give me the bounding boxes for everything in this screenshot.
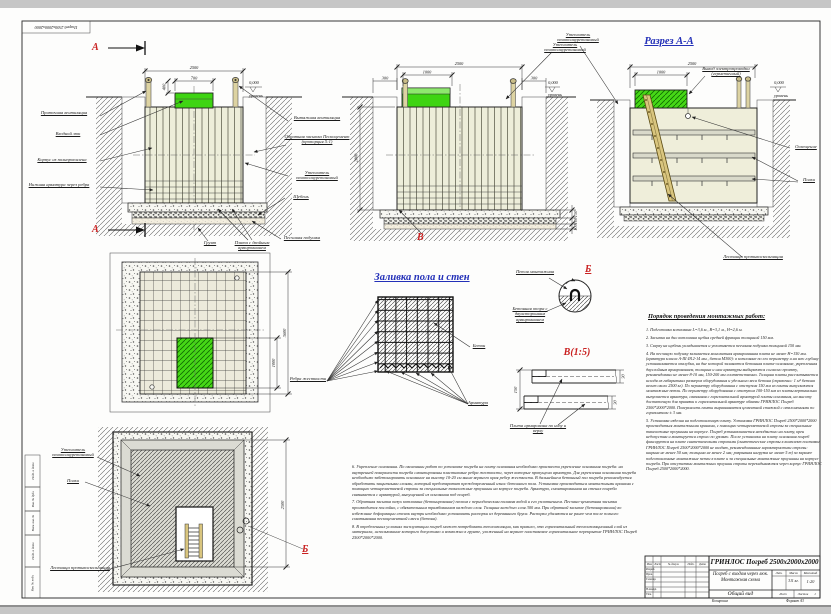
frame-format-label: Формат А3 (775, 599, 815, 603)
svg-text:1000: 1000 (271, 358, 276, 367)
titleblock-scale-value: 1:20 (801, 579, 820, 584)
titleblock-mass-value: 311 кг. (786, 579, 801, 583)
svg-text:уровень: уровень (773, 93, 788, 98)
detail-mark-v: В (417, 232, 424, 243)
svg-text:1000: 1000 (423, 70, 432, 75)
svg-text:2500: 2500 (190, 65, 199, 70)
detail-v-title: В(1:5) (552, 347, 602, 358)
view-side-section: 2500 1000 300 300 2000 150 100 100 0,000… (342, 52, 578, 241)
label-insulation-4: Утеплитель пенополиуретановый (42, 447, 104, 458)
detail-mark-b-plan: Б (302, 544, 308, 555)
titleblock-col-data: Дата (697, 563, 709, 566)
label-insulation-3: Утеплитель пенополиуретановый (552, 32, 604, 43)
titleblock-col-list: Лист (654, 563, 662, 566)
label-supply-vent: Приточная вентиляция (28, 110, 100, 115)
section-mark-a-bottom: А (92, 224, 99, 235)
svg-text:2500: 2500 (688, 61, 697, 66)
label-insulation-1: Утеплитель пенополиуретановый (288, 170, 346, 181)
label-crushed-stone: Щебень (284, 194, 318, 199)
instruction-item: 2. Засыпка на дно котлована щебня средне… (646, 335, 822, 340)
label-rebar: Арматура (460, 400, 496, 405)
titleblock-lit-label: Лит. (772, 571, 786, 575)
label-lighting: Освещение (786, 144, 826, 149)
titleblock-mass-label: Масса (786, 571, 801, 575)
side-stamp-4: Подп. и дата (29, 535, 37, 567)
label-shelves-1: Полки (794, 177, 824, 182)
label-double-rebar-plate: Плита с двойным армированием (224, 240, 280, 251)
label-soil: Грунт (196, 240, 224, 245)
titleblock-row-nkontr: Н.контр. (646, 588, 662, 591)
titleblock-row-razrab: Разраб. (646, 568, 662, 571)
svg-text:30: 30 (621, 374, 626, 379)
svg-text:1000: 1000 (657, 70, 666, 75)
titleblock-col-podp: Подп. (686, 563, 697, 566)
instruction-item: 3. Сверху на щебень укладывается и уплот… (646, 343, 822, 348)
detail-v: 150 30 30 (513, 368, 626, 426)
instructions-list: 1. Подготовка котлована L=3,6 м., В=3,1 … (646, 327, 822, 474)
svg-text:2500: 2500 (455, 61, 464, 66)
label-mounting-loop: Петля монтажная (514, 269, 556, 274)
titleblock-row-tkontr: Т.контр. (646, 578, 662, 581)
svg-text:700: 700 (191, 76, 198, 81)
label-entry-hatch: Входной люк (38, 131, 98, 136)
svg-text:2500: 2500 (280, 500, 285, 509)
label-concrete: Бетон (464, 343, 494, 348)
svg-text:300: 300 (382, 76, 389, 81)
instruction-item: 5. Установка изделия на подготовленную п… (646, 418, 822, 472)
corner-stamp: Погреб 2500x2000x2000 (22, 22, 90, 33)
label-ladder-2: Лестница противоскользящая (48, 565, 112, 570)
titleblock-row-prov: Пров. (646, 573, 662, 576)
side-stamp-5: Инв. № подл. (29, 567, 37, 598)
titleblock-sheets-value: 1 (812, 592, 818, 596)
note-item: 6. Укрепление основания. По окончании ра… (352, 464, 640, 497)
svg-text:150: 150 (573, 210, 578, 217)
note-item: 7. Обратная засыпка пазух котлована (бет… (352, 499, 640, 521)
svg-text:3600: 3600 (282, 328, 287, 337)
view-plan-plate: 3600 1000 (110, 253, 292, 412)
side-stamp-1: Подп. и дата (29, 455, 37, 487)
detail-mark-b: Б (585, 264, 591, 275)
view-plan-interior: 2500 (85, 427, 303, 592)
pour-title: Заливка пола и стен (362, 272, 482, 283)
titleblock-row-utv: Утв. (646, 593, 662, 596)
label-exhaust-vent: Вытяжная вентиляция (288, 115, 346, 120)
section-aa-title: Разрез А-А (634, 36, 704, 47)
label-sand-cushion-1: Песчаная подушка (276, 235, 328, 240)
titleblock-sheet-label: Лист (772, 592, 794, 596)
label-concrete-support: Бетонная опора с двухсторонним армирован… (502, 306, 558, 322)
side-stamp-3: Взам. инв. № (29, 511, 37, 535)
label-shelves-2: Полки (56, 478, 90, 483)
instructions-title: Порядок проведения монтажных работ: (648, 313, 820, 320)
svg-text:0,000: 0,000 (249, 80, 260, 86)
label-ladder-1: Лестница противоскользящая (722, 254, 784, 259)
view-front-section: 2500 700 400 0,000 уровень (86, 41, 302, 241)
titleblock-col-doc: № докум. (662, 563, 686, 566)
notes-list: 6. Укрепление основания. По окончании ра… (352, 464, 640, 543)
titleblock-scale-label: Масштаб (801, 571, 820, 575)
drawing-sheet: { "frame": { "corner_stamp": "Погреб 250… (0, 0, 831, 614)
titleblock-product: ГРИНЛОС Погреб 2500x2000x2000 (710, 558, 819, 566)
label-bottom-rebar: Нижняя арматура через ребра (18, 182, 100, 187)
label-stiffening-ribs: Ребра жесткости (288, 376, 328, 381)
titleblock-col-izm: Изм. (646, 563, 654, 566)
label-pp-body: Корпус из полипропилена (24, 157, 100, 162)
note-item: 8. В определенных условиях эксплуатации … (352, 524, 640, 541)
label-wiring-outlet: Вывод электропроводки (герметичный) (700, 66, 752, 77)
svg-text:100: 100 (573, 223, 578, 230)
titleblock-doc-title: Погреб с входом через люк. Монтажная схе… (710, 572, 771, 584)
label-insulation-2: Утеплитель пенополиуретановый (536, 42, 594, 53)
titleblock-sheets-label: Листов (794, 592, 812, 596)
svg-text:30: 30 (613, 400, 618, 405)
svg-text:0,000: 0,000 (774, 80, 785, 86)
view-section-aa: 2500 1000 0,000 уровень (580, 46, 798, 257)
svg-text:150: 150 (513, 386, 518, 393)
svg-text:100: 100 (573, 217, 578, 224)
frame-copied-label: Копировал (700, 599, 740, 603)
label-backfill: Обратная засыпка Пескоцемент (пропорция … (284, 134, 350, 145)
instruction-item: 1. Подготовка котлована L=3,6 м., В=3,1 … (646, 327, 822, 332)
titleblock-view-name: Общий вид (710, 591, 771, 597)
svg-text:400: 400 (162, 83, 167, 90)
svg-text:0,000: 0,000 (548, 80, 559, 86)
detail-pour (327, 297, 470, 404)
instruction-item: 4. На песчаную подушку заливается моноли… (646, 351, 822, 416)
side-stamp-2: Инв. № дубл. (29, 487, 37, 511)
label-plate-rebar: Плита армирована по низу и верху (506, 423, 570, 434)
svg-text:уровень: уровень (547, 92, 562, 97)
svg-text:2000: 2000 (354, 153, 359, 162)
section-mark-a-top: А (92, 42, 99, 53)
svg-text:300: 300 (531, 76, 538, 81)
